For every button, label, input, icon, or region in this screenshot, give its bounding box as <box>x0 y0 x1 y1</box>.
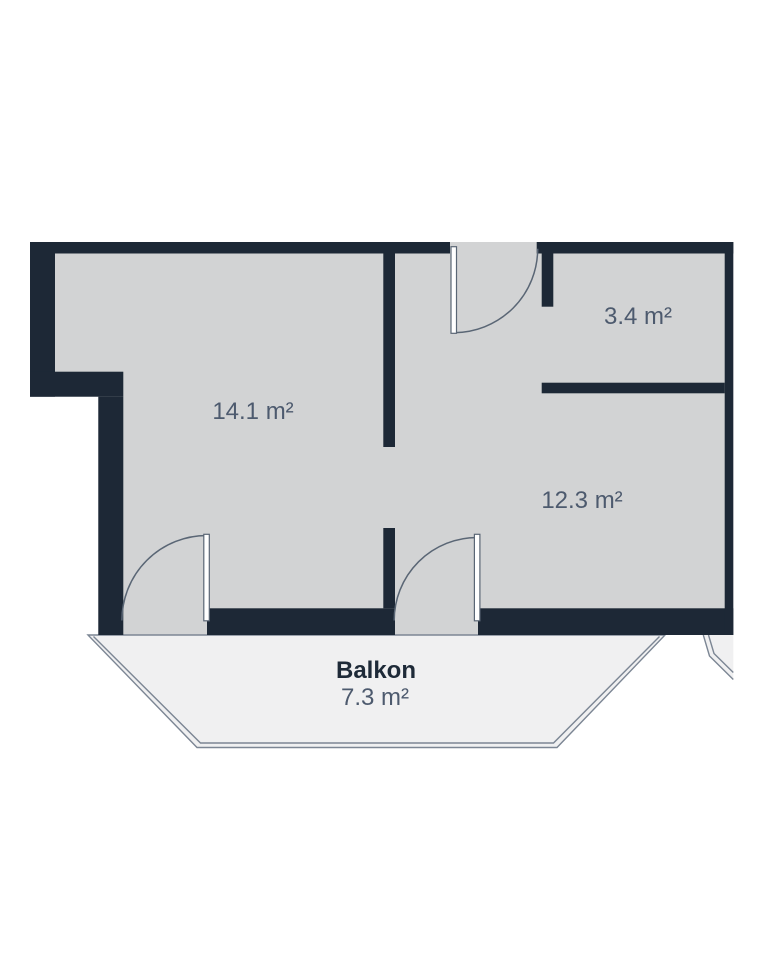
wall-interior-horizontal <box>542 383 725 394</box>
wall-bottom-right <box>478 608 733 635</box>
wall-top-right <box>537 242 734 254</box>
balcony-door-middle-leaf <box>474 534 480 621</box>
floorplan-page: 14.1 m² 3.4 m² 12.3 m² Balkon 7.3 m² <box>0 0 768 960</box>
balcony-name-label: Balkon <box>336 657 416 684</box>
apartment-floor <box>30 242 733 635</box>
apartment-floor-shape <box>30 242 733 635</box>
balcony-door-left-leaf <box>204 534 210 621</box>
balcony <box>88 635 733 748</box>
wall-right <box>725 242 734 635</box>
room-large-area-label: 14.1 m² <box>212 398 293 425</box>
wall-left-jog <box>30 372 123 397</box>
wall-interior-vertical-lower <box>383 528 395 608</box>
floorplan-canvas: 14.1 m² 3.4 m² 12.3 m² Balkon 7.3 m² <box>0 0 768 960</box>
wall-interior-stub <box>542 253 554 307</box>
wall-top-left <box>30 242 450 254</box>
balcony-area-label: 7.3 m² <box>341 684 409 711</box>
room-medium-area-label: 12.3 m² <box>541 487 622 514</box>
wall-left-lower <box>98 397 123 635</box>
wall-bottom-left <box>207 608 395 635</box>
room-small-area-label: 3.4 m² <box>604 303 672 330</box>
wall-interior-vertical-upper <box>383 253 395 447</box>
entry-door-leaf <box>451 247 457 334</box>
